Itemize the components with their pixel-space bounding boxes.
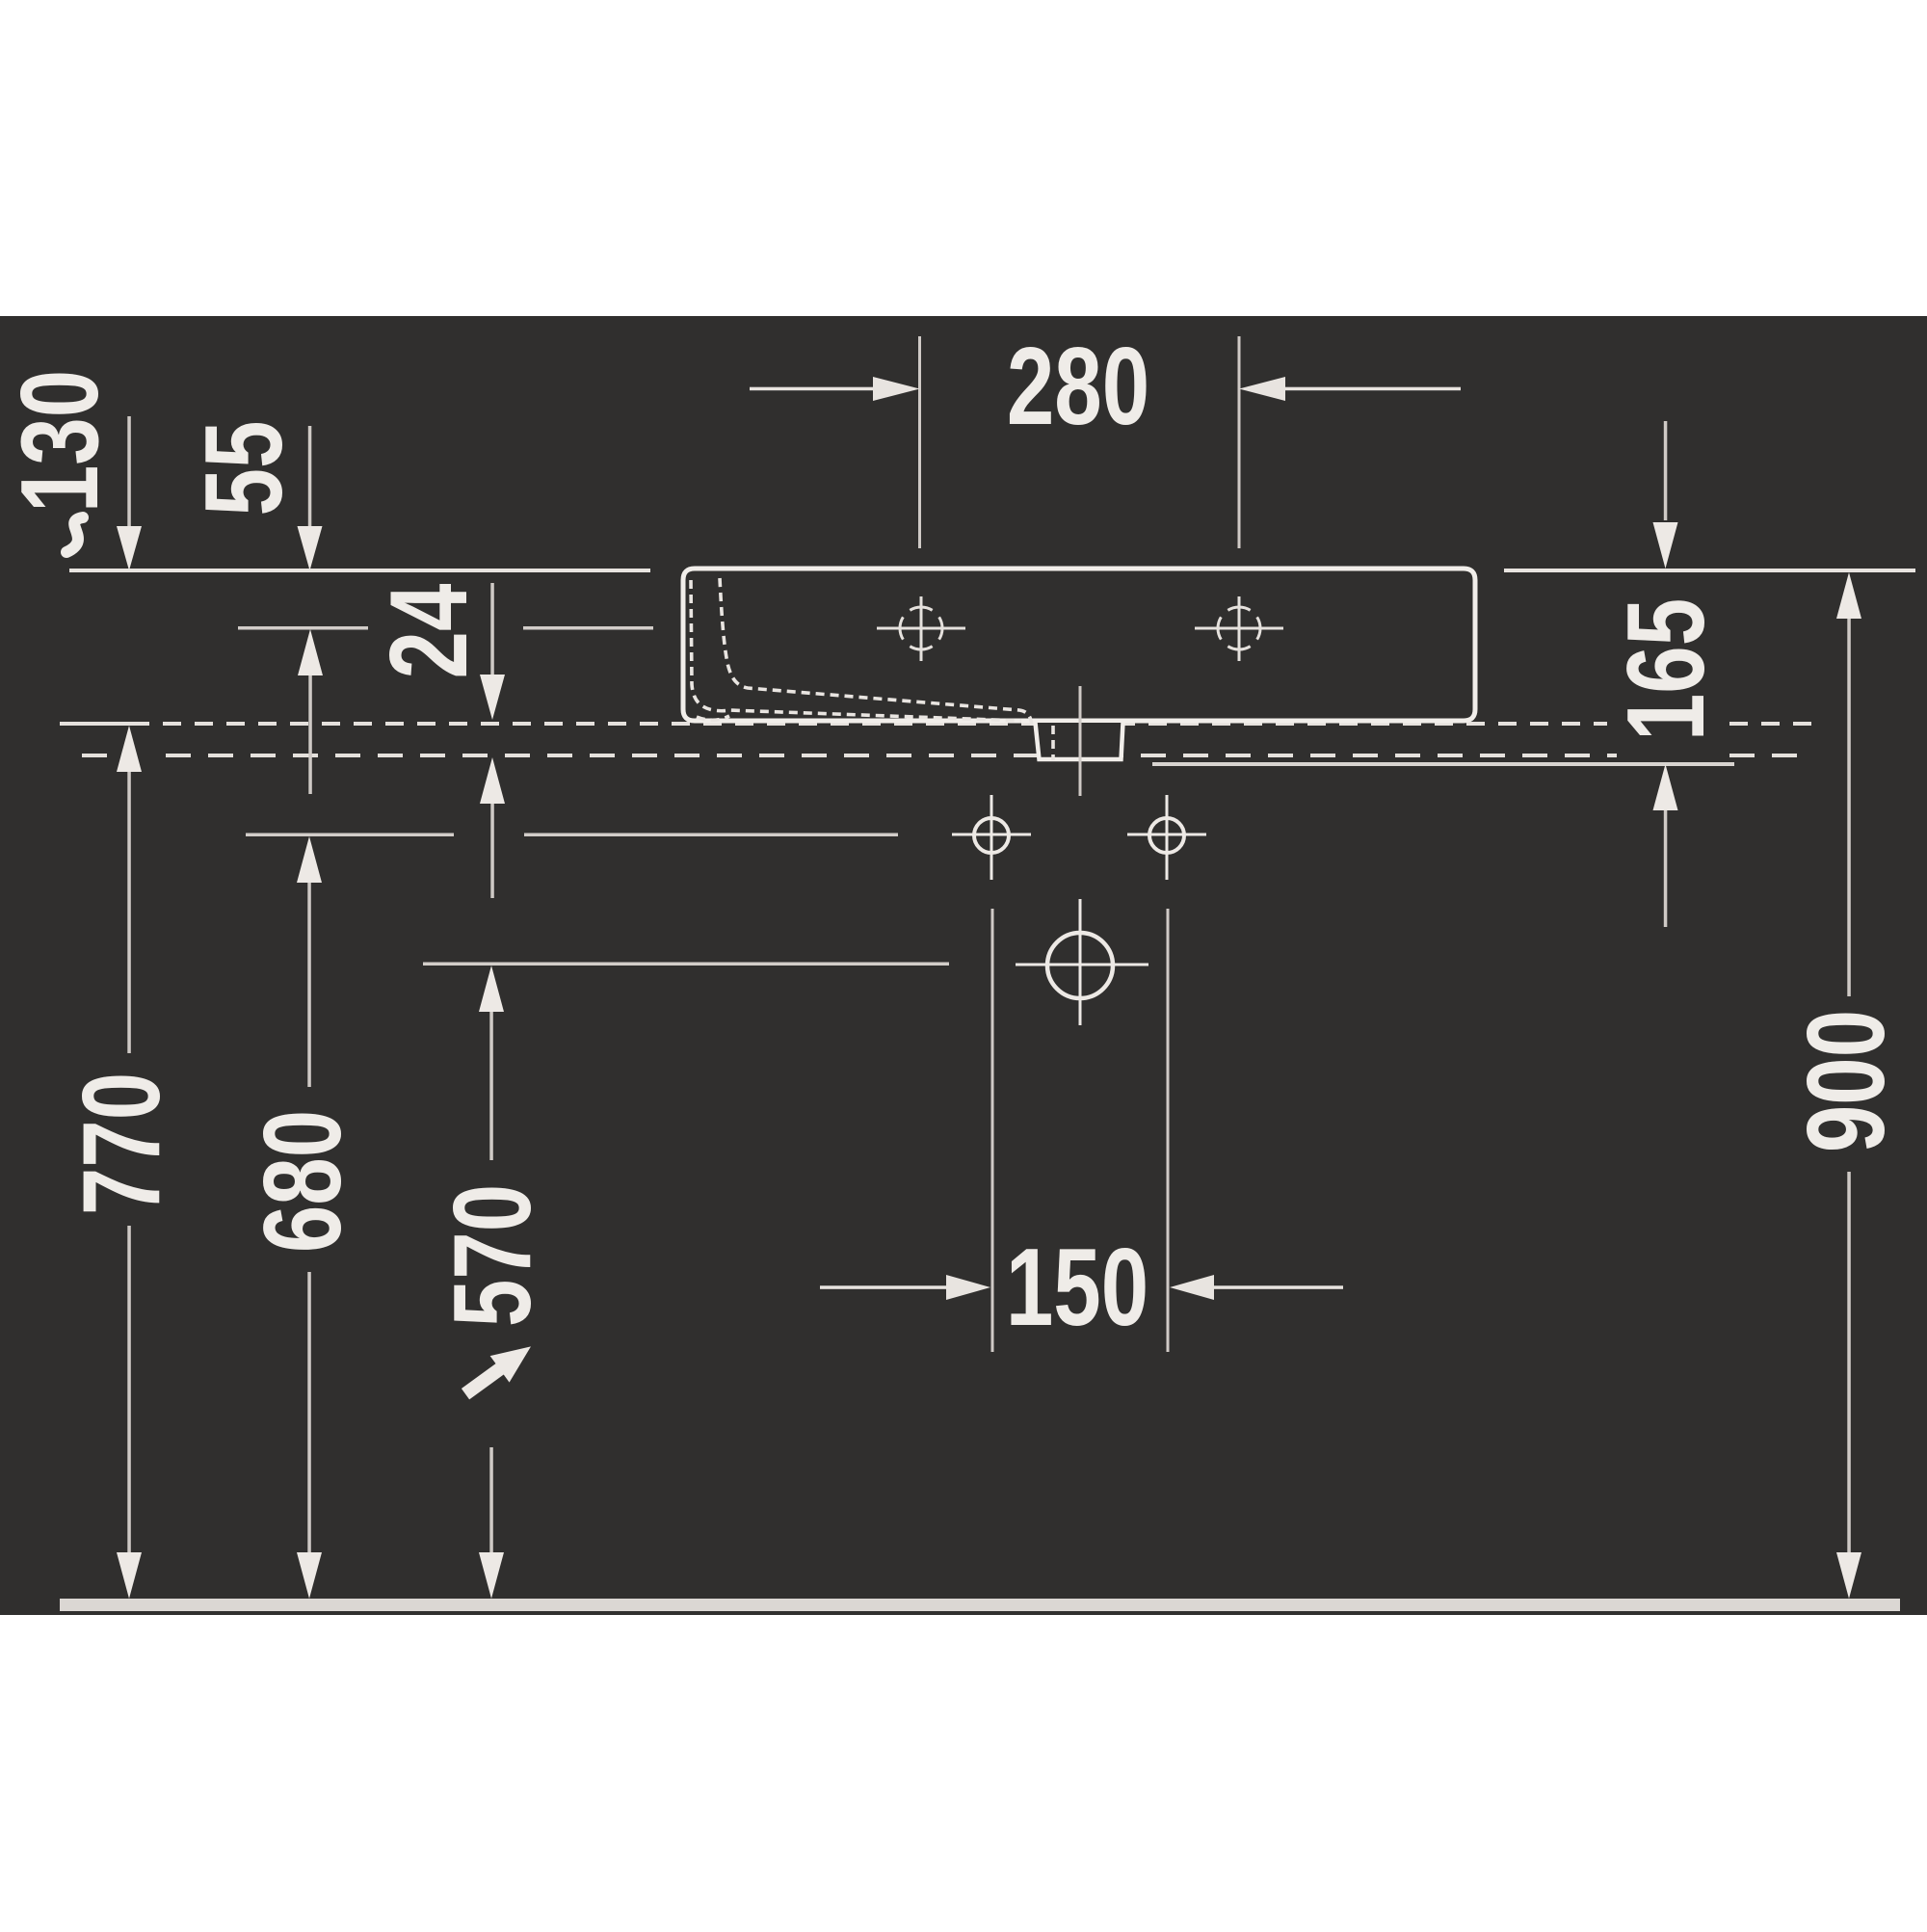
svg-text:900: 900: [1783, 1010, 1907, 1152]
svg-text:280: 280: [1007, 324, 1149, 447]
svg-text:150: 150: [1006, 1225, 1148, 1348]
svg-text:55: 55: [181, 421, 304, 516]
svg-text:770: 770: [59, 1072, 182, 1215]
svg-text:680: 680: [240, 1110, 363, 1253]
svg-text:165: 165: [1603, 598, 1727, 741]
svg-text:570: 570: [430, 1184, 553, 1327]
svg-text:130: 130: [0, 370, 121, 513]
svg-text:24: 24: [366, 583, 489, 678]
